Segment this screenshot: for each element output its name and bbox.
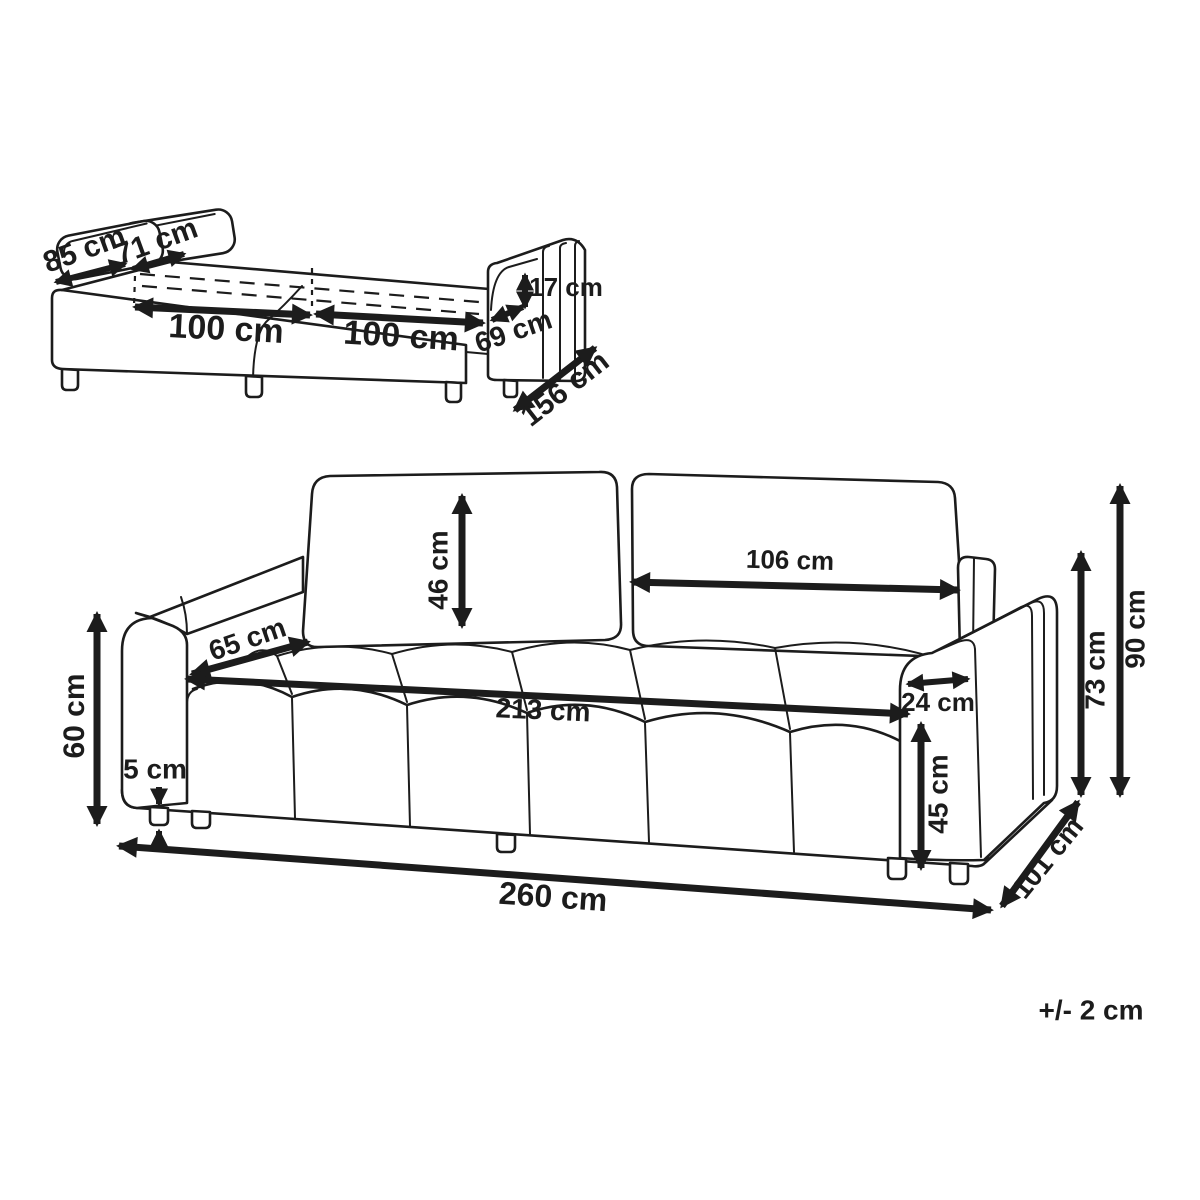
dim-17cm-label: 17 cm (529, 272, 603, 302)
dim-46cm-label: 46 cm (422, 530, 453, 609)
dim-5cm-label: 5 cm (123, 753, 187, 784)
tolerance-note: +/- 2 cm (1038, 994, 1143, 1025)
top-view-sofa-bed: 85 cm 71 cm 100 cm 100 cm 17 cm 69 cm 15… (39, 208, 615, 434)
dim-24cm-label: 24 cm (901, 687, 975, 717)
sofa-leg-5 (950, 863, 968, 884)
sofa-leg-3 (497, 834, 515, 852)
bed-leg-3 (446, 382, 461, 402)
dim-45cm-label: 45 cm (922, 754, 953, 833)
dim-213cm-label: 213 cm (495, 692, 591, 727)
sofa-leg-2 (192, 811, 210, 828)
bed-leg-2 (246, 376, 262, 397)
bed-armrest-leg (504, 380, 517, 397)
dim-60cm-label: 60 cm (58, 673, 91, 758)
dimension-diagram: 85 cm 71 cm 100 cm 100 cm 17 cm 69 cm 15… (0, 0, 1200, 1200)
mattress-dashed-left-edge (134, 276, 135, 306)
dim-90cm-label: 90 cm (1119, 589, 1150, 668)
sofa-leg-1 (150, 807, 168, 825)
dim-73cm-label: 73 cm (1079, 630, 1110, 709)
dim-100cm-right-label: 100 cm (342, 314, 459, 359)
sofa-leg-4 (888, 858, 906, 879)
dim-260cm-label: 260 cm (498, 875, 609, 918)
product-dimension-sheet: 85 cm 71 cm 100 cm 100 cm 17 cm 69 cm 15… (0, 0, 1200, 1200)
main-view-sofa: 46 cm 106 cm 65 cm 60 cm 5 cm 213 cm 24 … (58, 472, 1150, 918)
bed-leg-1 (62, 369, 78, 390)
dim-100cm-left-label: 100 cm (168, 307, 285, 351)
seat-front-left-corner (187, 689, 197, 702)
dim-106cm-label: 106 cm (746, 544, 835, 576)
